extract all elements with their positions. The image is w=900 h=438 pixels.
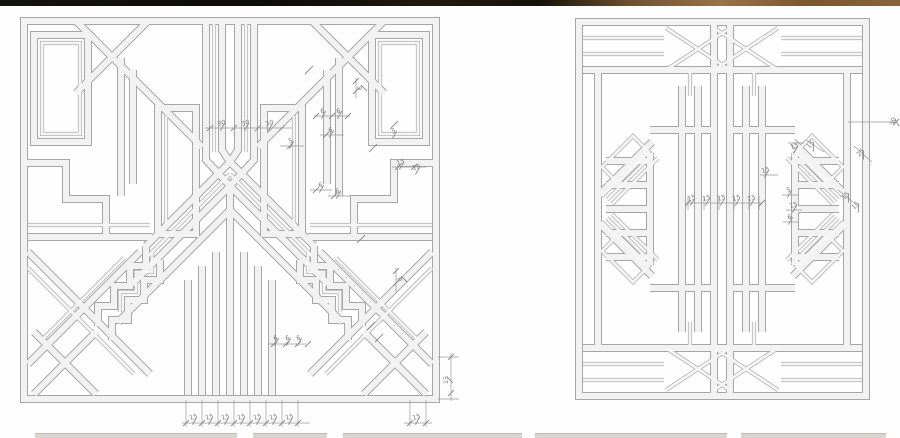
- dimension-label: 6: [272, 334, 278, 343]
- dimension-label: 6: [295, 334, 301, 343]
- dimension-label: 15: [850, 200, 862, 212]
- dimension-label: 6: [327, 126, 333, 135]
- dimension-label: 5: [390, 127, 396, 136]
- thumbnail-edge: [535, 433, 727, 438]
- thumbnail-edge: [35, 433, 237, 438]
- bottom-thumbnail-strip: [0, 432, 900, 438]
- dimension-label: 15: [731, 193, 741, 203]
- dimension-label: 15: [252, 412, 262, 422]
- thumbnail-edge: [741, 433, 886, 438]
- left-grille: [24, 21, 436, 399]
- dimension-label: 15: [188, 412, 198, 422]
- dimension-label: 15: [204, 412, 214, 422]
- dimension-label: 15: [268, 412, 278, 422]
- page-canvas: 3030306666551515666666151515151515151515…: [0, 0, 900, 438]
- dimension-label: 15: [442, 376, 450, 384]
- dimension-label: 15: [220, 412, 230, 422]
- dimension-label: 15: [716, 193, 726, 203]
- dimension-label: 15: [284, 412, 294, 422]
- panel-drawings: 3030306666551515666666151515151515151515…: [0, 0, 900, 438]
- thumbnail-edge: [253, 433, 327, 438]
- dimension-label: 15: [411, 412, 421, 422]
- right-grille-bars: [579, 22, 866, 396]
- dimension-label: 6: [284, 334, 290, 343]
- dimension-label: 5: [785, 186, 791, 195]
- dimension-label: 15: [236, 412, 246, 422]
- right-grille: [579, 22, 866, 396]
- dimension-label: 15: [746, 193, 756, 203]
- thumbnail-edge: [343, 433, 522, 438]
- left-grille-bars: [24, 21, 436, 399]
- dimension-label: 30: [240, 118, 250, 128]
- dimension-label: 6: [317, 181, 323, 190]
- dimension-label: 15: [760, 165, 770, 175]
